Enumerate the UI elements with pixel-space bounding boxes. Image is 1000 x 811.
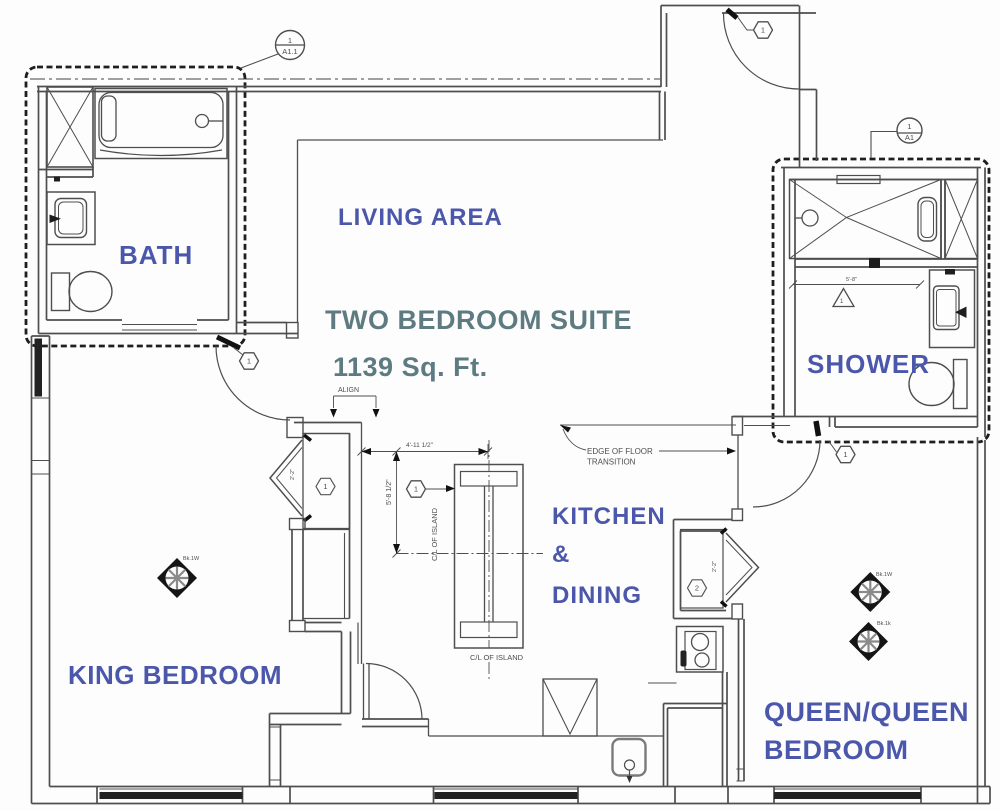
svg-text:SHOWER: SHOWER <box>807 349 930 379</box>
svg-text:2'-2": 2'-2" <box>712 561 718 572</box>
svg-text:1: 1 <box>323 482 327 491</box>
svg-text:&: & <box>552 541 569 568</box>
svg-text:5'-8": 5'-8" <box>846 277 857 283</box>
svg-text:BEDROOM: BEDROOM <box>764 735 909 765</box>
svg-text:BATH: BATH <box>119 240 193 270</box>
svg-text:DINING: DINING <box>552 582 642 609</box>
svg-text:A1.1: A1.1 <box>282 47 297 56</box>
svg-text:TWO BEDROOM SUITE: TWO BEDROOM SUITE <box>325 305 632 335</box>
svg-text:1139 Sq. Ft.: 1139 Sq. Ft. <box>333 352 488 382</box>
svg-text:1: 1 <box>288 36 292 45</box>
svg-text:2: 2 <box>695 584 699 593</box>
svg-text:C/L OF ISLAND: C/L OF ISLAND <box>470 653 524 662</box>
svg-text:2'-2": 2'-2" <box>290 469 296 480</box>
svg-text:TRANSITION: TRANSITION <box>587 458 636 467</box>
svg-text:1: 1 <box>761 26 765 35</box>
svg-text:LIVING AREA: LIVING AREA <box>338 204 503 231</box>
svg-text:Bk.1k: Bk.1k <box>877 621 891 627</box>
svg-text:4'-11 1/2": 4'-11 1/2" <box>406 442 434 449</box>
svg-text:1: 1 <box>843 450 847 459</box>
svg-text:ALIGN: ALIGN <box>338 387 359 394</box>
svg-text:Bk.1W: Bk.1W <box>876 572 893 578</box>
svg-text:C/L OF ISLAND: C/L OF ISLAND <box>430 507 439 561</box>
svg-text:KITCHEN: KITCHEN <box>552 503 666 530</box>
svg-text:QUEEN/QUEEN: QUEEN/QUEEN <box>764 697 969 727</box>
svg-text:1: 1 <box>907 122 911 131</box>
svg-text:5'-8 1/2": 5'-8 1/2" <box>386 479 393 505</box>
svg-text:1: 1 <box>414 485 418 494</box>
svg-text:KING BEDROOM: KING BEDROOM <box>68 660 282 690</box>
svg-text:Bk.1W: Bk.1W <box>183 556 200 562</box>
svg-text:A1: A1 <box>905 133 914 142</box>
svg-text:EDGE OF FLOOR: EDGE OF FLOOR <box>587 447 653 456</box>
svg-text:1: 1 <box>247 357 251 366</box>
